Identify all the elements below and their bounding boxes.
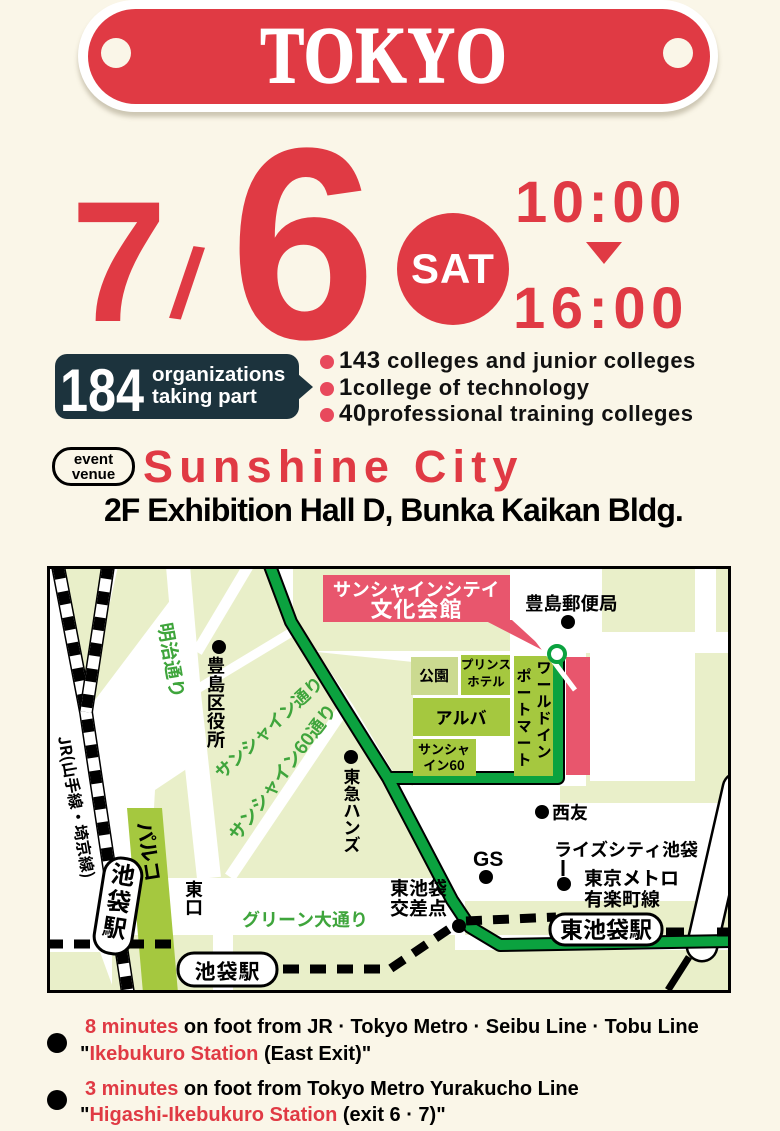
svg-text:GS: GS [473,848,503,871]
